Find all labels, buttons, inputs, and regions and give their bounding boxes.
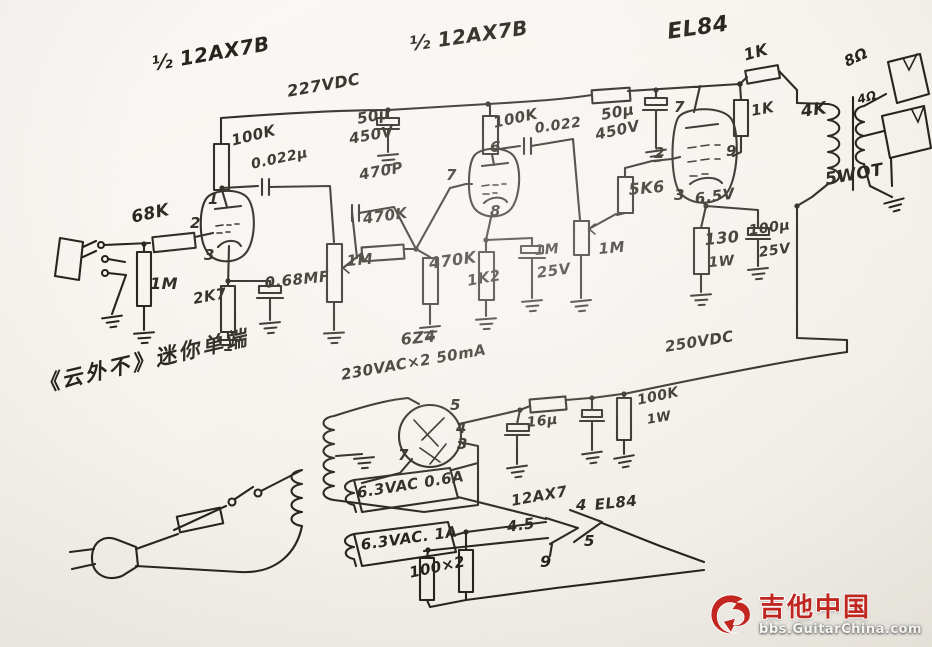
label-pot2-1m: 1M [598, 240, 626, 257]
schematic-page: ½ 12AX7B ½ 12AX7B EL84 227VDC 100K 0.022… [0, 0, 932, 647]
pin-el84-9: 9 [726, 144, 736, 159]
schematic-drawing [0, 0, 932, 647]
resistor-psu-filter [530, 396, 567, 412]
resistor-100k-bleeder [617, 398, 631, 440]
pin-v1-1: 1 [208, 192, 218, 207]
watermark-brand: 吉他中国 [759, 595, 871, 621]
pot-1m-master [574, 221, 589, 255]
pin-6z4-5: 5 [450, 398, 460, 413]
pin-v2-8: 8 [490, 204, 500, 219]
label-heater-pin-9: 9 [540, 554, 552, 570]
pin-v2-7: 7 [446, 168, 456, 183]
label-c-16u: 16μ [526, 413, 559, 430]
watermark: 吉他中国 bbs.GuitarChina.com [703, 587, 930, 645]
label-r-100k-bleeder-wattage: 1W [646, 410, 672, 427]
tube-v1-electrodes [215, 206, 241, 247]
cap-16u [507, 424, 529, 431]
pin-el84-2: 2 [654, 146, 664, 161]
pin-el84-7: 7 [674, 100, 684, 115]
input-jack-tip [98, 242, 104, 248]
label-heater-pin-5: 5 [584, 534, 595, 549]
label-r-1k-screen: 1K [750, 100, 775, 119]
speaker-jack-4ohm [882, 106, 931, 158]
cap-psu-2 [582, 410, 602, 417]
pin-el84-3: 3 [674, 188, 684, 203]
watermark-site: bbs.GuitarChina.com [759, 623, 922, 636]
label-r-130: 130 [704, 229, 740, 248]
cap-50u-450v-2 [645, 98, 667, 105]
resistor-1m-input [137, 252, 151, 306]
label-r-5k6: 5K6 [628, 179, 665, 198]
label-heater-el84: EL84 [594, 494, 638, 513]
tube-v2-electrodes [482, 163, 508, 203]
jack-contact-springs [903, 54, 924, 122]
speaker-jack-8ohm [888, 54, 929, 103]
label-pot1-1m: 1M [346, 252, 374, 269]
junction-dots [141, 81, 799, 552]
label-rectifier-tube-type: 6Z4 [400, 328, 437, 348]
tube-el84-electrodes [686, 124, 722, 184]
resistor-68k [152, 233, 195, 252]
label-c-cath2-value: 1M [534, 242, 560, 258]
label-heater-pins-45: 4.5 [506, 516, 536, 535]
power-switch [229, 499, 236, 506]
label-r-1m-input: 1M [150, 276, 178, 292]
input-jack [55, 238, 96, 280]
mains-plug [92, 538, 138, 578]
power-switch-contact [255, 490, 262, 497]
label-heater-pin-4: 4 [576, 498, 587, 513]
resistor-1k-plate [745, 65, 780, 84]
pin-6z4-7: 7 [398, 448, 408, 463]
guitarchina-logo-icon [707, 591, 755, 639]
pin-v2-6: 6 [490, 140, 500, 155]
resistor-100k-v1-plate [214, 144, 229, 190]
watermark-text: 吉他中国 bbs.GuitarChina.com [759, 595, 922, 636]
rectifier-plates [414, 418, 446, 464]
pin-v1-2: 2 [190, 216, 200, 231]
pin-6z4-4: 4 [456, 421, 466, 436]
label-c-100u-voltage: 25V [758, 242, 791, 260]
label-ot-primary-4k: 4K [800, 100, 828, 120]
pin-6z4-3: 3 [457, 437, 467, 452]
device-layer [55, 54, 931, 578]
label-r-130-wattage: 1W [708, 254, 735, 270]
input-jack-sleeve [102, 270, 108, 276]
pin-v1-3: 3 [204, 248, 214, 263]
input-jack-switch [102, 256, 108, 262]
